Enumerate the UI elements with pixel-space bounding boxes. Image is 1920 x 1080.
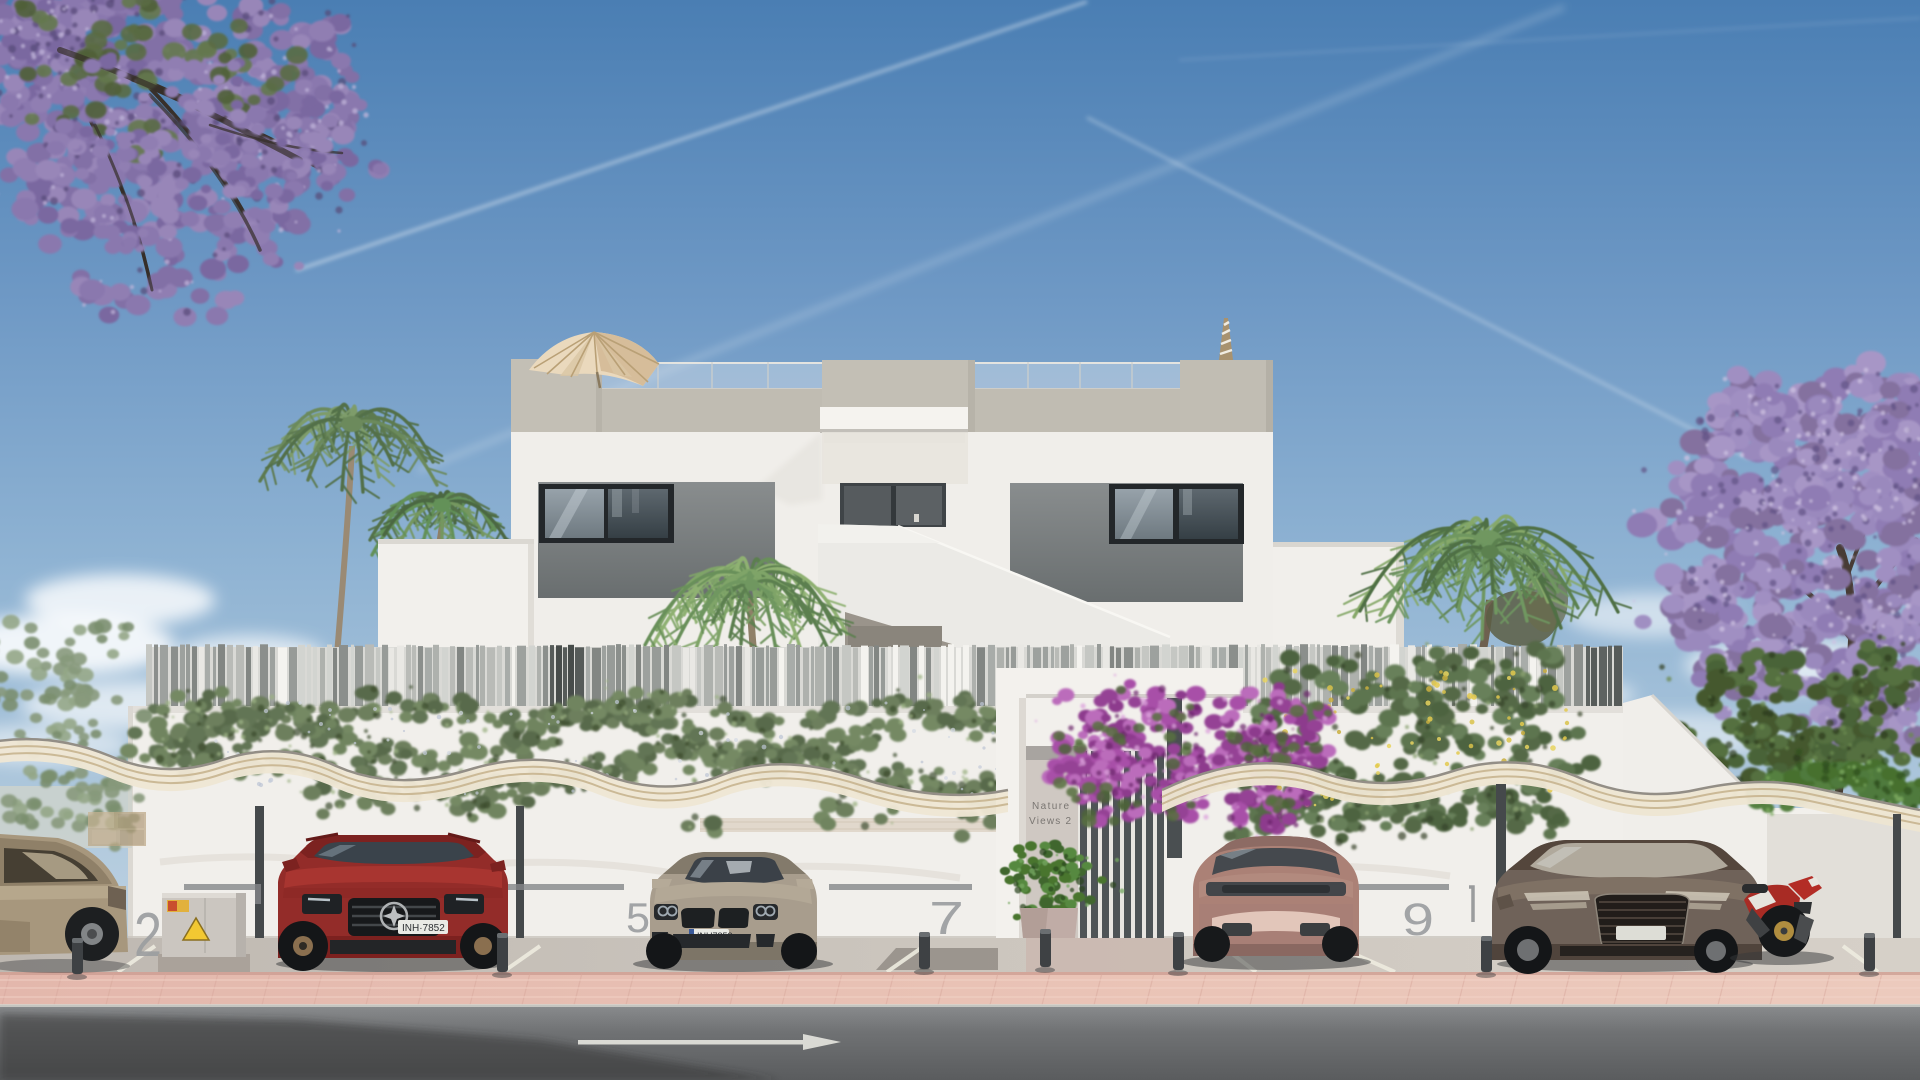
svg-text:5: 5 bbox=[626, 894, 650, 941]
svg-text:9: 9 bbox=[1402, 894, 1434, 945]
svg-text:7: 7 bbox=[929, 892, 964, 944]
svg-text:INH·7852: INH·7852 bbox=[402, 923, 445, 934]
svg-text:2: 2 bbox=[134, 901, 162, 970]
svg-text:Views 2: Views 2 bbox=[1029, 816, 1072, 827]
svg-text:Nature: Nature bbox=[1032, 801, 1070, 812]
